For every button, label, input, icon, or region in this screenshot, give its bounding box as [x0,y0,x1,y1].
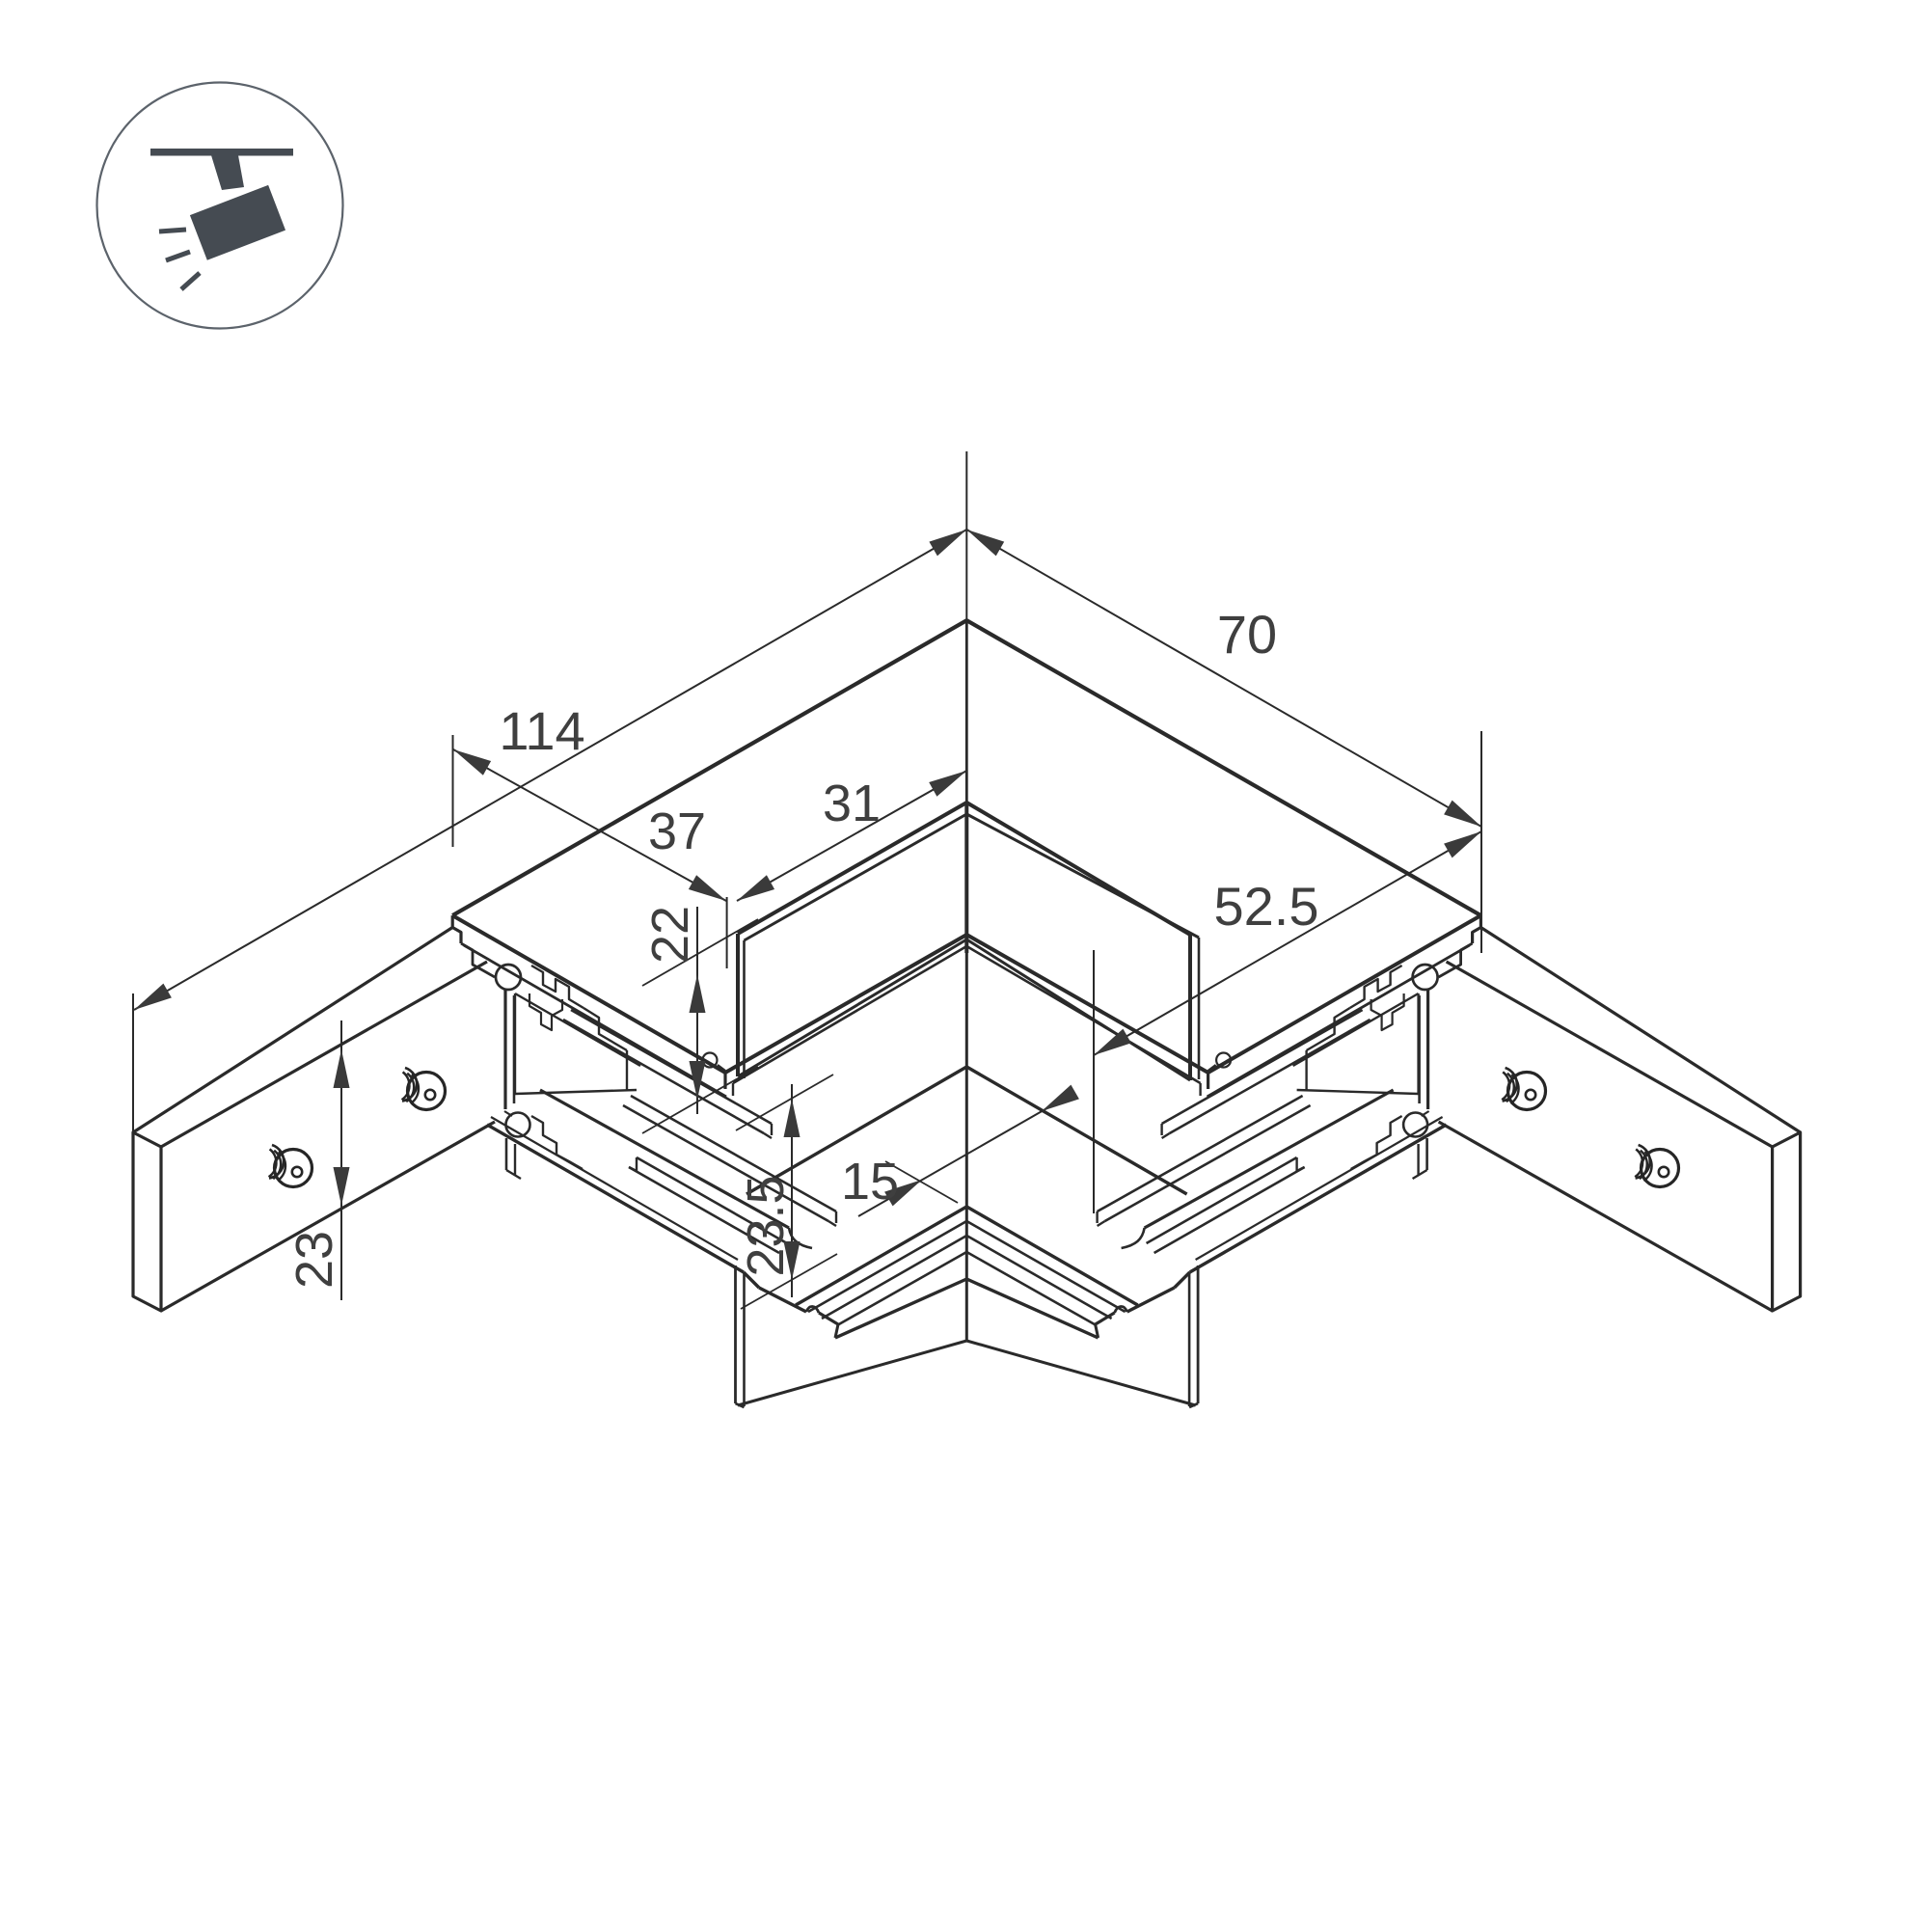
svg-text:31: 31 [823,775,881,832]
svg-text:114: 114 [499,700,584,761]
svg-text:23.5: 23.5 [737,1175,795,1276]
svg-text:15: 15 [841,1153,899,1211]
svg-text:23: 23 [285,1231,343,1289]
svg-text:22: 22 [641,906,699,964]
svg-text:70: 70 [1217,604,1277,665]
svg-text:52.5: 52.5 [1214,876,1319,937]
svg-text:37: 37 [648,803,706,860]
